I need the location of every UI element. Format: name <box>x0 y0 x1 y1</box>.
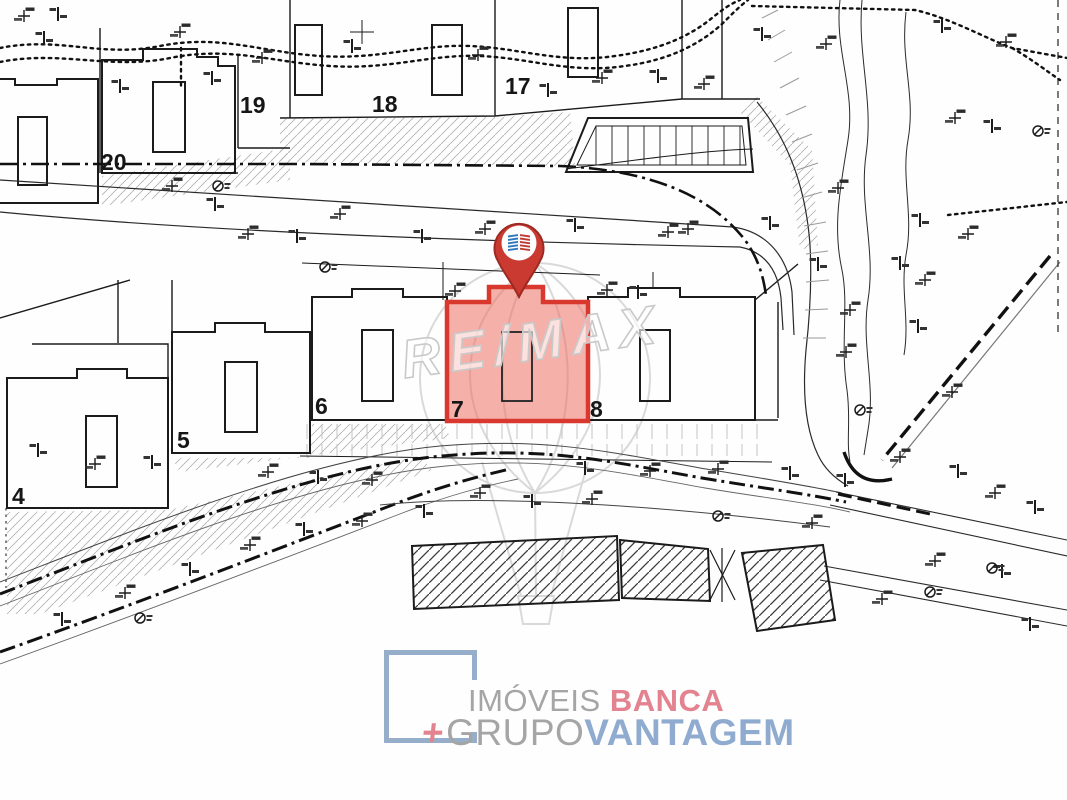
plot-label-20: 20 <box>101 149 127 175</box>
plot-label-18: 18 <box>372 91 398 117</box>
plot-label-17: 17 <box>505 73 531 99</box>
plot-label-4: 4 <box>12 483 25 509</box>
brand-vantagem: VANTAGEM <box>584 712 794 753</box>
plot-label-5: 5 <box>177 427 190 453</box>
plot-label-8: 8 <box>590 396 603 422</box>
existing-buildings-hatched <box>412 536 835 631</box>
brand-line-2: +GRUPOVANTAGEM <box>422 712 795 754</box>
site-plan-image: 20 19 18 17 4 5 6 7 8 RE/MAX <box>0 0 1067 800</box>
plus-icon: + <box>420 712 447 754</box>
plot-label-6: 6 <box>315 393 328 419</box>
plot-label-7: 7 <box>451 396 464 422</box>
brand-logo: IMÓVEIS BANCA +GRUPOVANTAGEM <box>384 650 784 760</box>
brand-grupo: GRUPO <box>446 712 584 753</box>
plot-label-19: 19 <box>240 92 266 118</box>
